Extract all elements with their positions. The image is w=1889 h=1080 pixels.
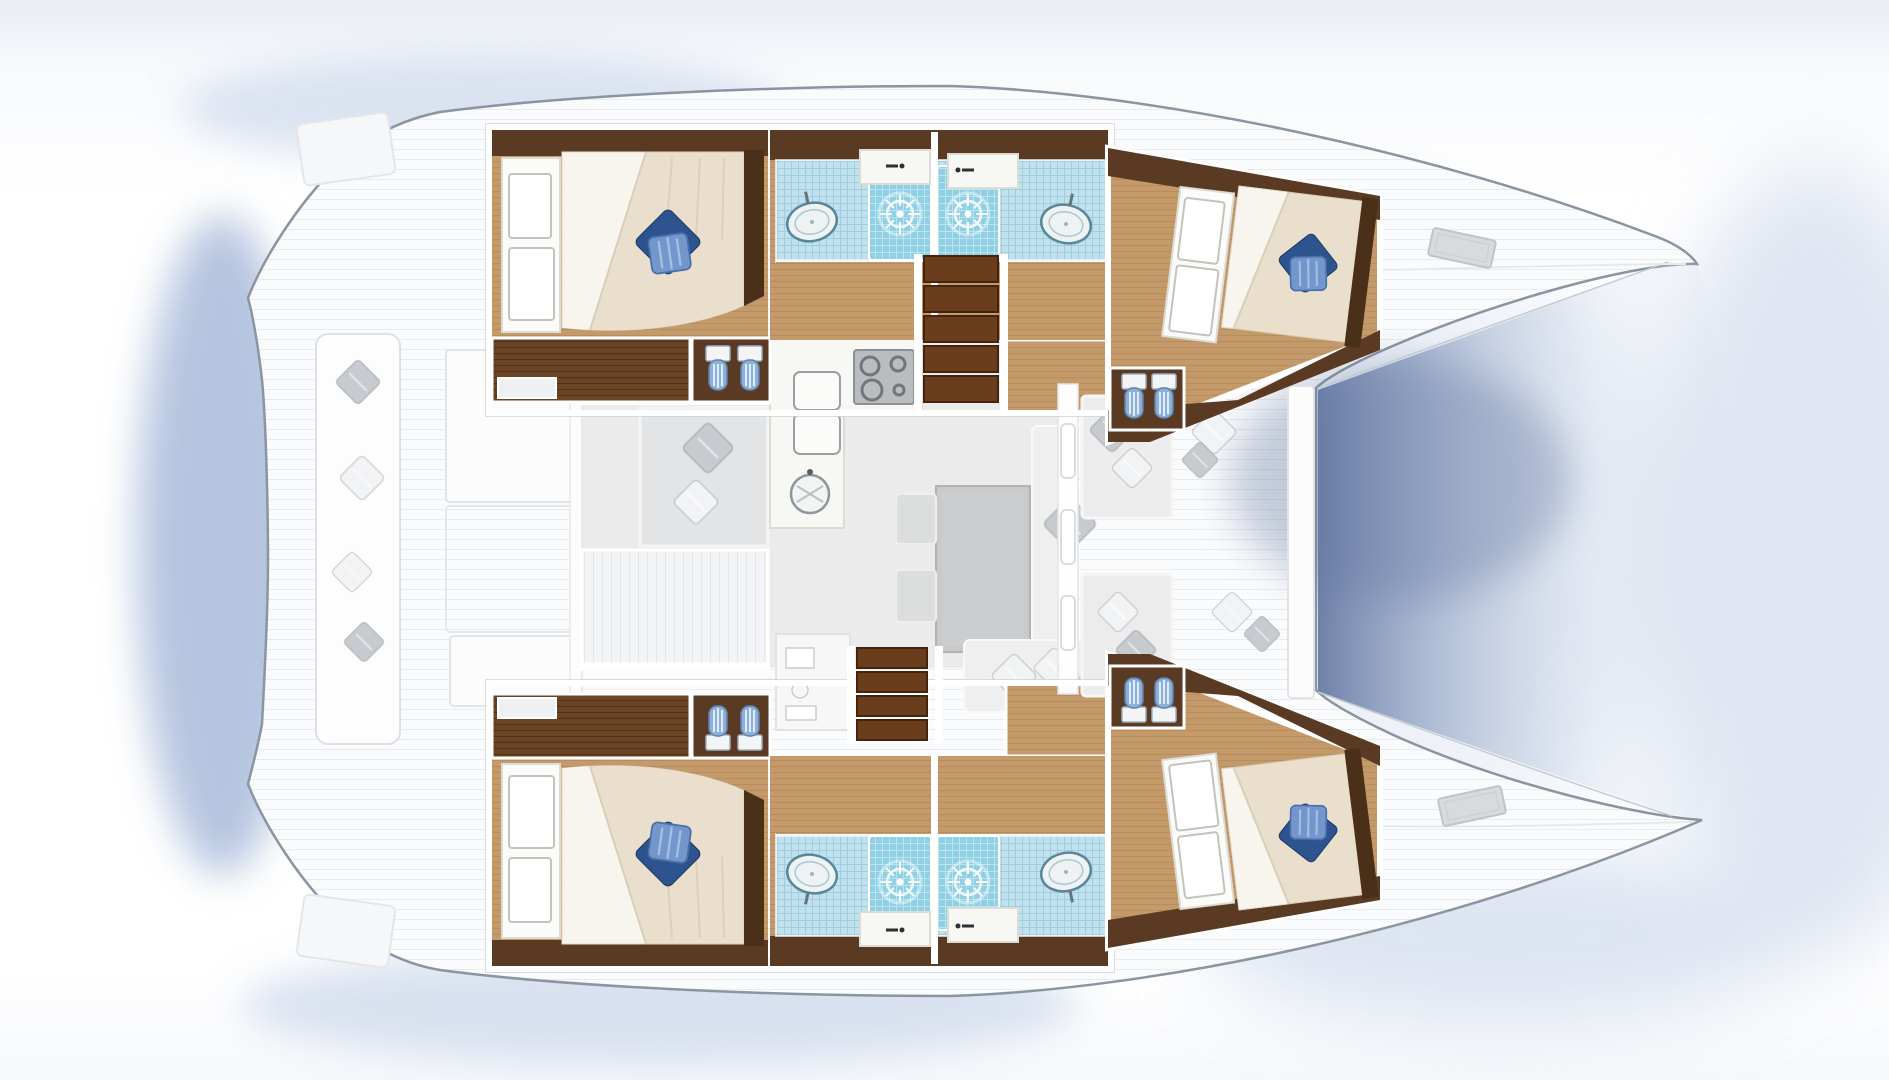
dining-seat [896, 494, 936, 544]
head-toilets-aft [692, 338, 770, 402]
forward-crossbeam [1288, 386, 1314, 698]
wardrobe-door [509, 248, 554, 320]
water-shadow-deep [1230, 360, 1570, 600]
bed-headboard [744, 150, 764, 306]
stern-locker-bottom [296, 894, 396, 968]
front-window [1061, 424, 1075, 478]
wardrobe-door [509, 174, 551, 238]
wardrobe-door [1169, 265, 1219, 336]
floor-plan-canvas: Bird's-eye layout drawing: four double c… [0, 0, 1889, 1080]
cabin-step [498, 378, 556, 398]
yacht-floorplan: Catamaran yacht interior floor plan (top… [0, 0, 1889, 1080]
front-window [1061, 596, 1075, 650]
wall-line [578, 664, 770, 671]
cockpit-table [446, 506, 576, 632]
galley-faucet [807, 469, 813, 475]
companionway-stairs-top [914, 254, 1008, 414]
dining-seat [896, 570, 936, 622]
stern-locker-top [296, 112, 396, 186]
galley-fridge-bottom [794, 414, 840, 454]
bathroom-partition [931, 132, 938, 262]
galley-fridge-top [794, 372, 840, 410]
bathroom-wall [770, 130, 1108, 160]
head-toilets-bow [1110, 368, 1184, 430]
front-window [1061, 510, 1075, 564]
saloon-seat-striped [582, 550, 768, 664]
wardrobe-door [1178, 198, 1225, 264]
